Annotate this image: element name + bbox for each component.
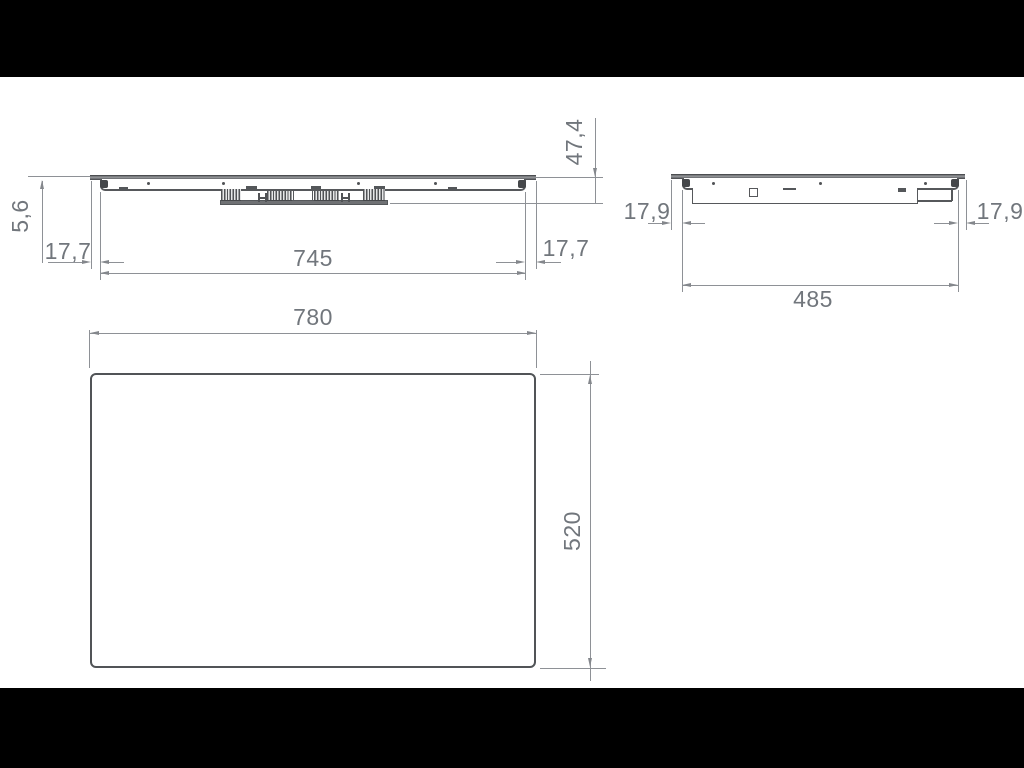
dimension-line [545, 262, 561, 263]
dimension-line [934, 223, 949, 224]
heatsink-fins [221, 189, 241, 201]
dim-label-front-body-width: 745 [283, 246, 343, 270]
side-housing-flange [918, 200, 952, 202]
dimension-line [109, 262, 124, 263]
dimension-line [595, 118, 596, 203]
dimension-line [590, 361, 591, 681]
arrowhead-up [588, 375, 592, 384]
side-dash-detail [783, 188, 796, 190]
dim-label-side-right-inset: 17,9 [974, 199, 1024, 223]
dim-label-side-left-inset: 17,9 [621, 199, 673, 223]
standoff-mark [119, 187, 128, 190]
screw-dot [819, 182, 822, 185]
dimension-line [691, 223, 705, 224]
dim-label-plan-overall-width: 780 [283, 305, 343, 329]
arrowhead-left [100, 271, 109, 275]
side-casing-right-cap [951, 179, 959, 187]
fan-housing [293, 190, 313, 201]
arrowhead-left [682, 221, 691, 225]
dim-label-plan-overall-depth: 520 [560, 501, 584, 561]
arrowhead-down [588, 658, 592, 667]
arrowhead-right [949, 221, 958, 225]
heatsink-fins [363, 189, 385, 201]
extension-line [958, 190, 959, 292]
letterbox-bottom [0, 688, 1024, 768]
extension-line [540, 668, 606, 669]
extension-line [525, 192, 526, 280]
dim-label-side-body-depth: 485 [783, 287, 843, 311]
standoff-mark [246, 186, 257, 189]
arrowhead-left [682, 283, 691, 287]
letterbox-top [0, 0, 1024, 77]
side-dash-detail [898, 188, 906, 192]
dim-label-front-glass-thickness: 5,6 [8, 186, 32, 246]
arrowhead-right [516, 260, 525, 264]
side-notch-detail [749, 188, 758, 197]
front-casing-right-cap [518, 180, 526, 188]
extension-line [89, 330, 90, 368]
screw-dot [434, 182, 437, 185]
technical-drawing-canvas: 5,6 17,7 745 17,7 47,4 [0, 0, 1024, 768]
standoff-mark [311, 186, 321, 189]
dim-label-front-overall-height: 47,4 [562, 112, 586, 172]
extension-line [28, 176, 90, 177]
side-casing-left-cap [682, 179, 690, 187]
side-lower-housing [692, 188, 918, 204]
extension-line [390, 203, 603, 204]
arrowhead-down [593, 168, 597, 177]
dimension-line [496, 262, 516, 263]
extension-line [682, 190, 683, 292]
screw-dot [147, 182, 150, 185]
dimension-line [90, 333, 536, 334]
front-casing [100, 179, 526, 191]
heatsink-bracket [258, 193, 267, 202]
extension-line [536, 177, 603, 178]
arrowhead-right [527, 331, 536, 335]
dim-label-front-left-inset: 17,7 [42, 239, 94, 263]
screw-dot [357, 182, 360, 185]
screw-dot [712, 182, 715, 185]
heatsink-fins [314, 191, 339, 201]
heatsink-bracket [341, 193, 350, 202]
arrowhead-left [100, 260, 109, 264]
plan-glass-outline [90, 373, 536, 668]
front-casing-left-cap [100, 180, 108, 188]
screw-dot [924, 182, 927, 185]
heatsink-fins [267, 191, 292, 201]
extension-line [100, 192, 101, 280]
standoff-mark [448, 187, 457, 190]
arrowhead-up [40, 180, 44, 189]
arrowhead-left [90, 331, 99, 335]
extension-line [536, 330, 537, 368]
arrowhead-right [949, 283, 958, 287]
side-housing-flange-edge [951, 188, 953, 201]
extension-line [536, 181, 537, 269]
dim-label-front-right-inset: 17,7 [540, 236, 592, 260]
dimension-line [100, 273, 526, 274]
screw-dot [222, 182, 225, 185]
